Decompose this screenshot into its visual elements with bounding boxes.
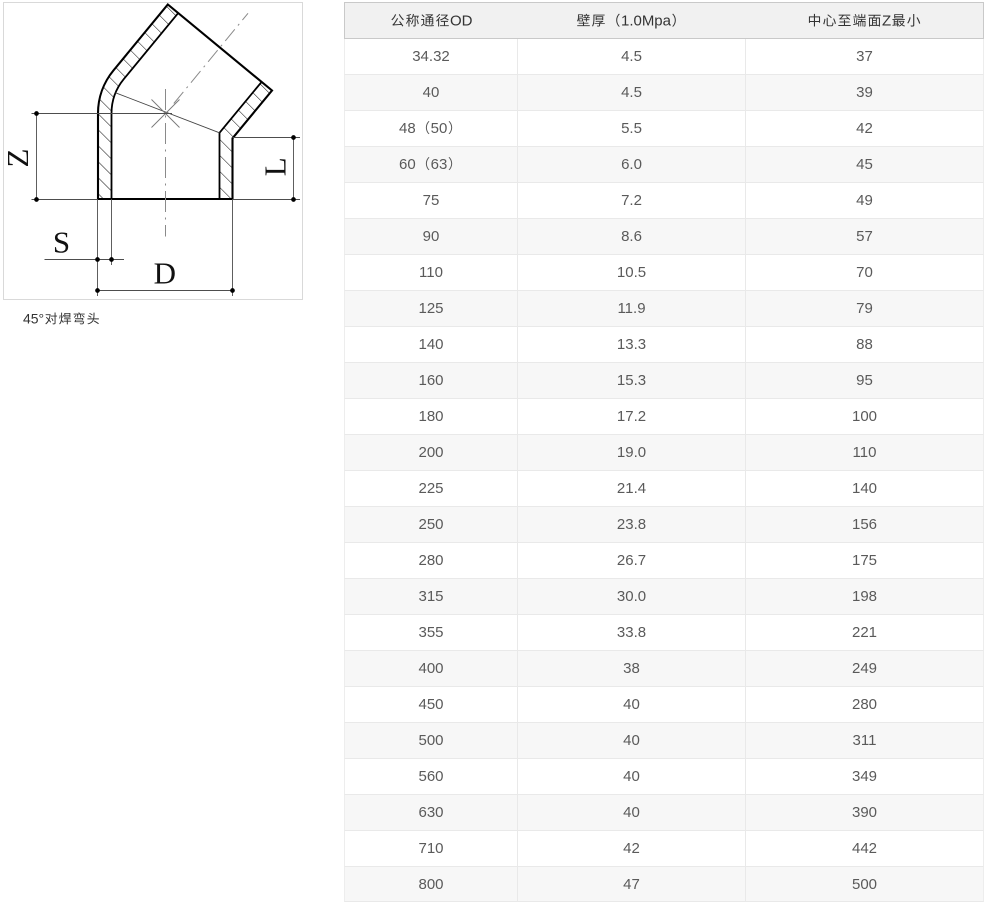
svg-text:OD: OD [450,12,473,29]
svg-text:50: 50 [431,120,448,137]
svg-text:D: D [154,256,176,291]
svg-text:1.0Mpa: 1.0Mpa [621,12,672,29]
svg-text:Z: Z [882,12,891,29]
svg-text:63: 63 [431,156,448,173]
svg-text:Z: Z [0,149,35,168]
svg-text:L: L [258,157,293,176]
svg-text:S: S [53,225,70,260]
svg-text:48: 48 [399,120,416,137]
svg-text:60: 60 [399,156,416,173]
svg-text:45°: 45° [23,311,44,326]
